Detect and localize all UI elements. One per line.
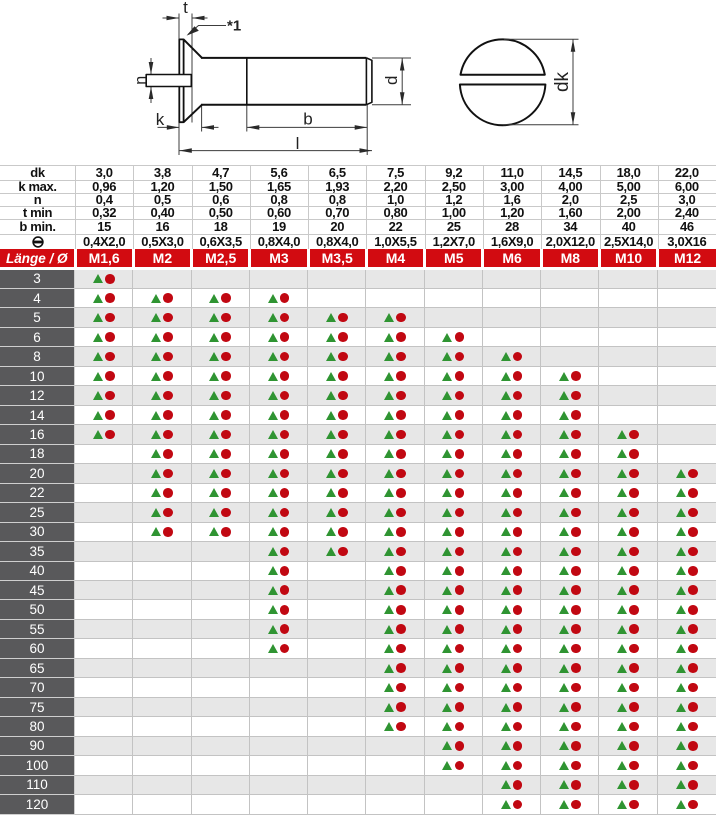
- svg-text:dk: dk: [552, 71, 573, 92]
- svg-text:b: b: [303, 110, 312, 129]
- svg-text:t: t: [183, 0, 188, 17]
- svg-text:k: k: [156, 110, 165, 129]
- svg-text:d: d: [382, 76, 401, 85]
- svg-text:*1: *1: [227, 18, 241, 35]
- svg-text:n: n: [133, 76, 150, 85]
- svg-text:l: l: [296, 134, 300, 153]
